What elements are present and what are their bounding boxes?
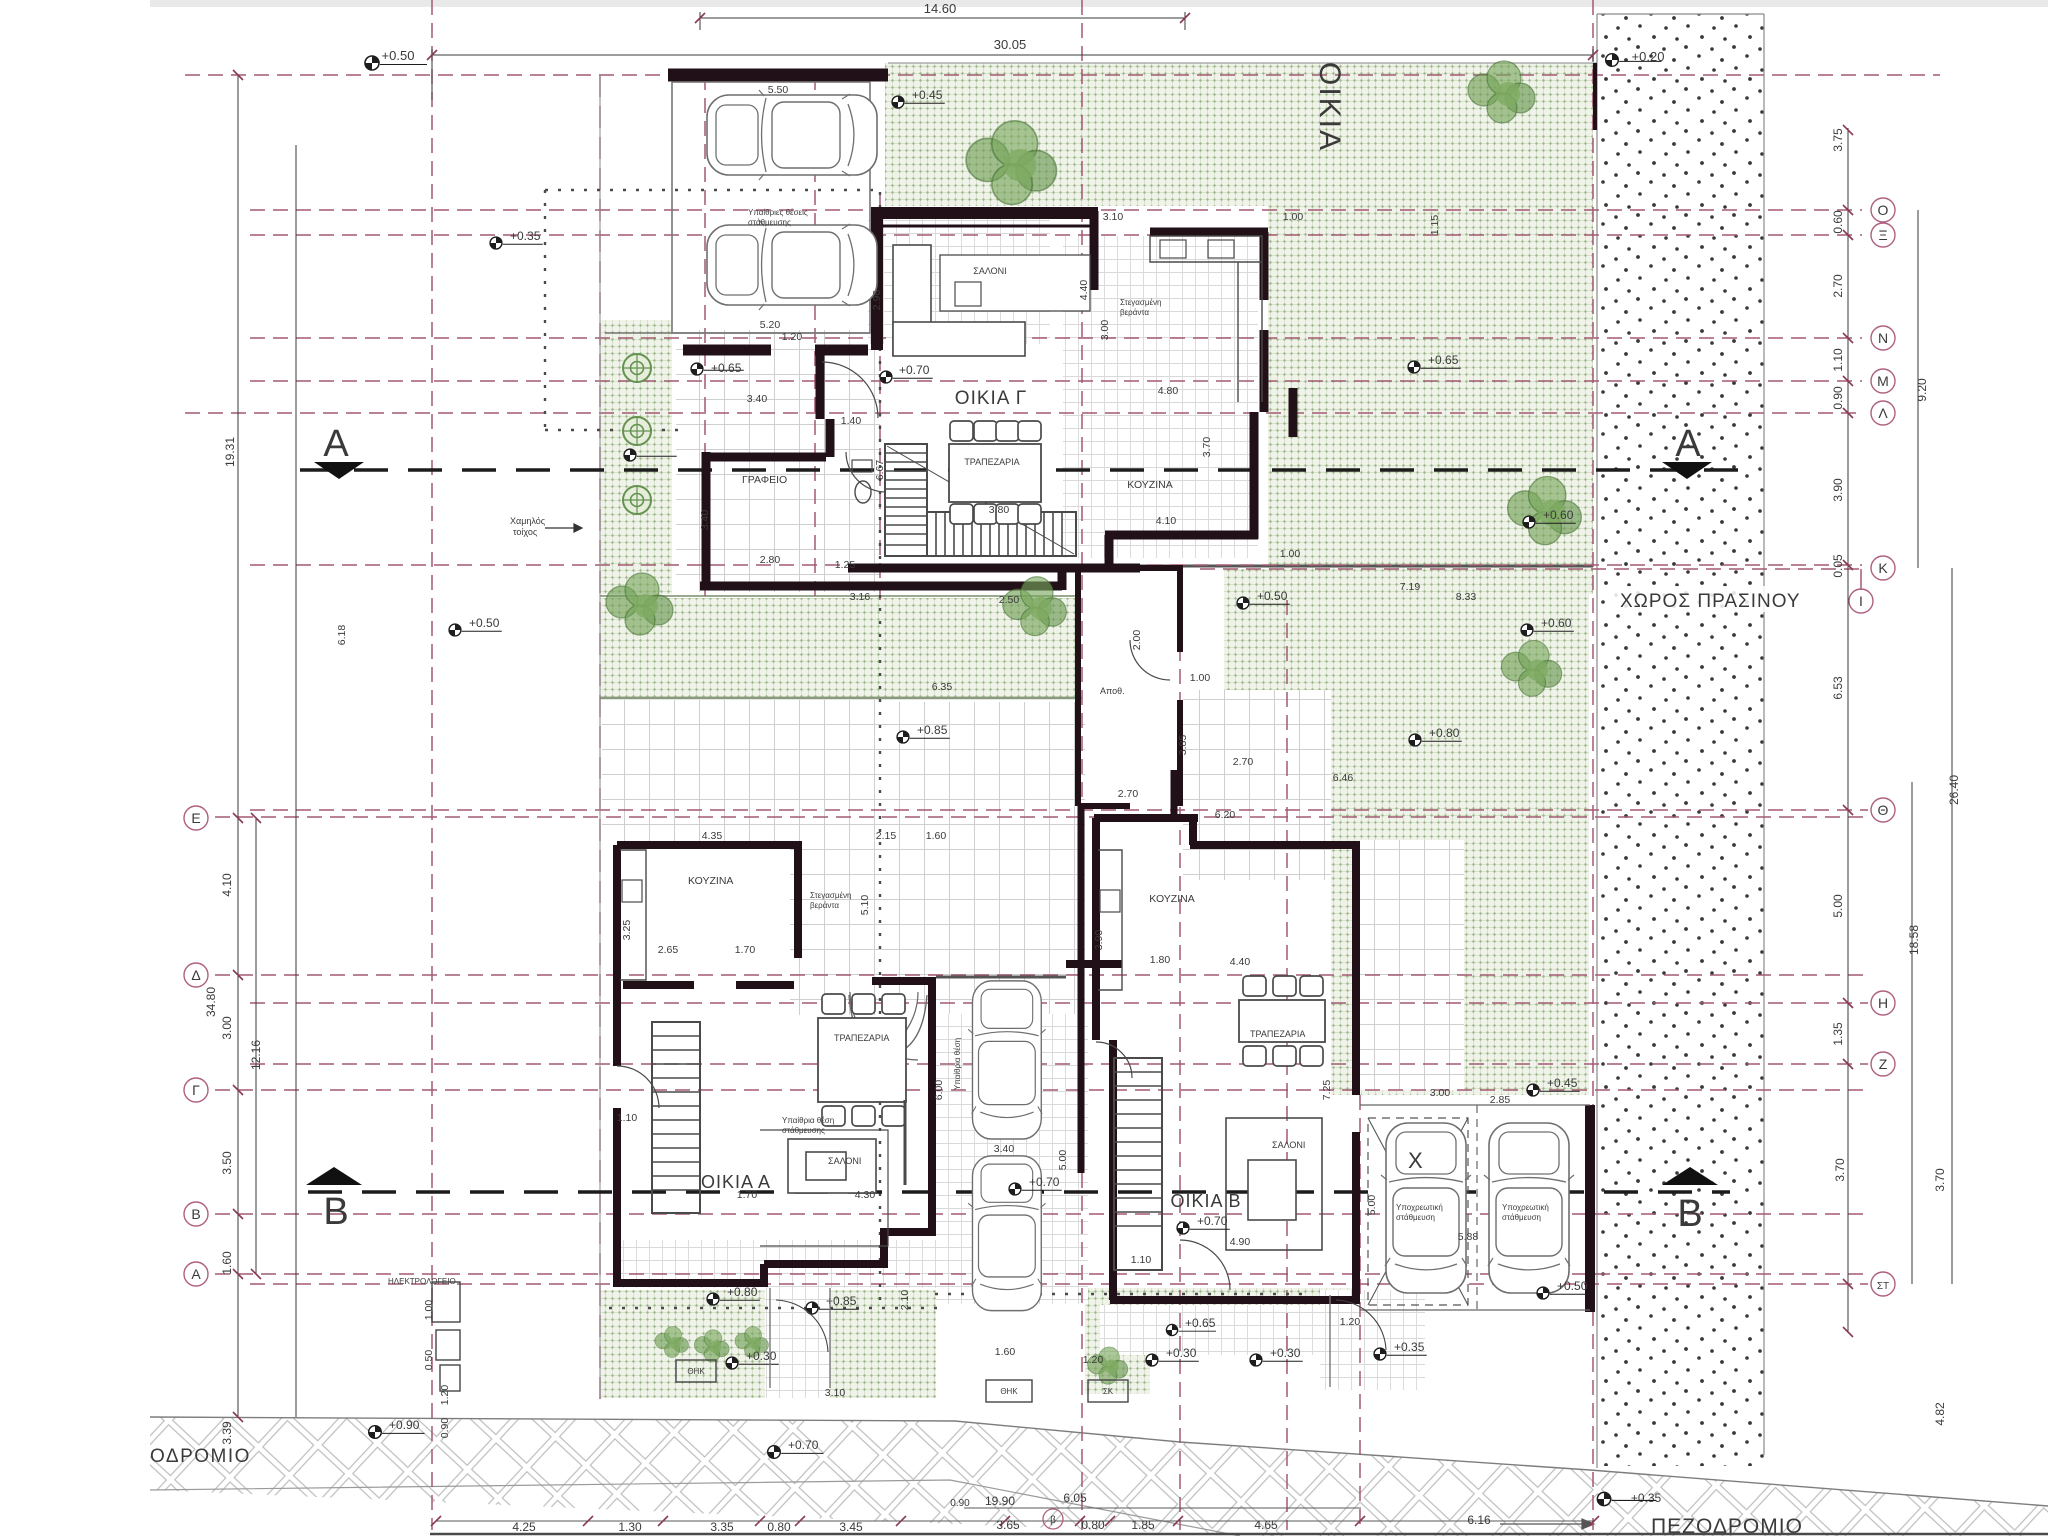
- svg-text:4.25: 4.25: [512, 1520, 536, 1534]
- svg-text:0.90: 0.90: [1831, 386, 1845, 410]
- svg-text:34.80: 34.80: [204, 987, 218, 1017]
- svg-text:2.96: 2.96: [871, 290, 883, 311]
- svg-text:1.70: 1.70: [735, 944, 756, 956]
- svg-text:Ξ: Ξ: [1878, 227, 1887, 243]
- svg-text:Υποχρεωτική: Υποχρεωτική: [1502, 1203, 1549, 1212]
- svg-text:Λ: Λ: [1878, 405, 1888, 421]
- svg-text:Γ: Γ: [192, 1082, 200, 1098]
- svg-text:+0.50: +0.50: [469, 616, 500, 630]
- svg-text:4.10: 4.10: [1156, 515, 1177, 527]
- svg-text:β: β: [1050, 1515, 1056, 1526]
- svg-text:1.15: 1.15: [1429, 215, 1441, 236]
- svg-text:+0.70: +0.70: [788, 1438, 819, 1452]
- svg-text:14.60: 14.60: [924, 1, 957, 16]
- svg-text:βεράντα: βεράντα: [810, 901, 839, 910]
- svg-text:στάθμευση: στάθμευση: [1502, 1213, 1541, 1222]
- svg-text:0.80: 0.80: [1081, 1518, 1105, 1532]
- svg-text:3.90: 3.90: [1831, 478, 1845, 502]
- svg-text:ΤΡΑΠΕΖΑΡΙΑ: ΤΡΑΠΕΖΑΡΙΑ: [964, 457, 1019, 467]
- svg-text:3.00: 3.00: [1099, 320, 1111, 341]
- svg-text:Κ: Κ: [1878, 560, 1888, 576]
- svg-text:ΤΡΑΠΕΖΑΡΙΑ: ΤΡΑΠΕΖΑΡΙΑ: [1250, 1029, 1305, 1039]
- svg-text:Αποθ.: Αποθ.: [1100, 686, 1125, 696]
- svg-text:1.10: 1.10: [617, 1112, 638, 1124]
- svg-text:3.45: 3.45: [839, 1520, 863, 1534]
- svg-text:2.70: 2.70: [1233, 756, 1254, 768]
- svg-text:1.35: 1.35: [1831, 1022, 1845, 1046]
- svg-text:5.20: 5.20: [760, 319, 781, 331]
- svg-text:1.00: 1.00: [423, 1300, 435, 1321]
- svg-text:1.60: 1.60: [926, 830, 947, 842]
- svg-text:Υποχρεωτική: Υποχρεωτική: [1396, 1203, 1443, 1212]
- svg-text:5.00: 5.00: [1057, 1150, 1069, 1171]
- svg-text:+0.90: +0.90: [389, 1418, 420, 1432]
- svg-text:ΚΟΥΖΙΝΑ: ΚΟΥΖΙΝΑ: [688, 875, 733, 887]
- svg-text:6.05: 6.05: [1063, 1491, 1087, 1505]
- svg-text:B: B: [323, 1191, 348, 1233]
- svg-text:Ο: Ο: [1878, 202, 1889, 218]
- svg-text:3.10: 3.10: [1103, 211, 1124, 223]
- svg-text:+0.35: +0.35: [1394, 1340, 1425, 1354]
- svg-text:9.20: 9.20: [1915, 378, 1929, 402]
- svg-text:στάθμευσης: στάθμευσης: [748, 218, 791, 227]
- svg-text:Χαμηλός: Χαμηλός: [510, 516, 546, 526]
- svg-text:4.30: 4.30: [855, 1189, 876, 1201]
- svg-text:+0.65: +0.65: [1185, 1316, 1216, 1330]
- svg-text:+0.30: +0.30: [746, 1349, 777, 1363]
- svg-text:τοίχος: τοίχος: [513, 527, 538, 537]
- svg-text:ΣΑΛΟΝΙ: ΣΑΛΟΝΙ: [973, 266, 1006, 276]
- svg-text:Ε: Ε: [191, 810, 200, 826]
- svg-text:4.35: 4.35: [702, 830, 723, 842]
- svg-text:+0.50: +0.50: [1557, 1279, 1588, 1293]
- svg-text:3.70: 3.70: [1201, 437, 1213, 458]
- svg-text:1.20: 1.20: [1083, 1354, 1104, 1366]
- svg-text:1.00: 1.00: [1283, 211, 1304, 223]
- svg-text:Ι: Ι: [1859, 593, 1863, 609]
- svg-text:ΤΡΑΠΕΖΑΡΙΑ: ΤΡΑΠΕΖΑΡΙΑ: [834, 1033, 889, 1043]
- svg-text:+0.70: +0.70: [1197, 1214, 1228, 1228]
- svg-text:2.80: 2.80: [760, 554, 781, 566]
- svg-text:B: B: [1677, 1193, 1702, 1235]
- svg-text:ΟΙΚΙΑ Β: ΟΙΚΙΑ Β: [1170, 1191, 1241, 1211]
- svg-text:ΣΑΛΟΝΙ: ΣΑΛΟΝΙ: [828, 1156, 861, 1166]
- svg-text:Υπαίθριες θέσεις: Υπαίθριες θέσεις: [748, 208, 808, 217]
- svg-text:ΓΡΑΦΕΙΟ: ΓΡΑΦΕΙΟ: [742, 474, 787, 486]
- svg-text:+0.70: +0.70: [899, 363, 930, 377]
- svg-text:1.60: 1.60: [995, 1346, 1016, 1358]
- svg-text:1.00: 1.00: [1280, 548, 1301, 560]
- svg-text:0.90: 0.90: [439, 1418, 451, 1439]
- svg-text:3.16: 3.16: [850, 591, 871, 603]
- svg-text:Θ: Θ: [1878, 802, 1889, 818]
- svg-text:1.60: 1.60: [220, 1251, 234, 1275]
- svg-text:Στεγασμένη: Στεγασμένη: [810, 891, 851, 900]
- svg-text:6.67: 6.67: [874, 460, 886, 481]
- svg-text:1.10: 1.10: [1131, 1254, 1152, 1266]
- svg-text:στάθμευσης: στάθμευσης: [782, 1126, 825, 1135]
- svg-text:2.15: 2.15: [876, 830, 897, 842]
- svg-text:7.19: 7.19: [1400, 581, 1421, 593]
- svg-text:3.65: 3.65: [996, 1518, 1020, 1532]
- svg-text:3.40: 3.40: [994, 1143, 1015, 1155]
- svg-text:Α: Α: [191, 1266, 201, 1282]
- svg-text:3.40: 3.40: [699, 510, 711, 531]
- svg-text:Υπαίθρια θέση: Υπαίθρια θέση: [782, 1116, 834, 1125]
- svg-text:0.50: 0.50: [423, 1350, 435, 1371]
- svg-text:+0.35: +0.35: [1631, 1491, 1662, 1505]
- svg-text:0.60: 0.60: [1831, 210, 1845, 234]
- svg-text:8.33: 8.33: [1456, 591, 1477, 603]
- svg-text:ΚΟΥΖΙΝΑ: ΚΟΥΖΙΝΑ: [1127, 479, 1172, 491]
- svg-text:3.35: 3.35: [710, 1520, 734, 1534]
- svg-text:5.88: 5.88: [1458, 1231, 1479, 1243]
- svg-text:3.00: 3.00: [1430, 1087, 1451, 1099]
- svg-text:1.20: 1.20: [439, 1385, 451, 1406]
- svg-text:1.40: 1.40: [841, 415, 862, 427]
- svg-text:3.70: 3.70: [1933, 1168, 1947, 1192]
- svg-text:ΧΩΡΟΣ ΠΡΑΣΙΝΟΥ: ΧΩΡΟΣ ΠΡΑΣΙΝΟΥ: [1620, 591, 1801, 612]
- svg-text:4.90: 4.90: [1230, 1236, 1251, 1248]
- svg-text:2.00: 2.00: [1131, 630, 1143, 651]
- svg-text:3.10: 3.10: [825, 1387, 846, 1399]
- svg-text:+0.80: +0.80: [1429, 726, 1460, 740]
- svg-text:Δ: Δ: [191, 967, 200, 983]
- svg-text:1.25: 1.25: [835, 559, 856, 571]
- svg-text:2.65: 2.65: [658, 944, 679, 956]
- svg-text:4.10: 4.10: [220, 873, 234, 897]
- svg-text:1.20: 1.20: [782, 331, 803, 343]
- svg-text:6.53: 6.53: [1831, 676, 1845, 700]
- svg-text:6.18: 6.18: [336, 625, 348, 646]
- svg-text:5.00: 5.00: [1831, 894, 1845, 918]
- svg-text:2.10: 2.10: [899, 1290, 911, 1311]
- svg-text:3.90: 3.90: [1093, 930, 1105, 951]
- svg-text:30.05: 30.05: [994, 37, 1027, 52]
- svg-text:Στεγασμένη: Στεγασμένη: [1120, 298, 1161, 307]
- svg-text:19.31: 19.31: [223, 437, 237, 467]
- svg-text:3.00: 3.00: [220, 1016, 234, 1040]
- svg-text:1.00: 1.00: [1190, 672, 1211, 684]
- svg-text:ΟΔΡΟΜΙΟ: ΟΔΡΟΜΙΟ: [150, 1446, 251, 1467]
- svg-text:3.85: 3.85: [1177, 735, 1189, 756]
- svg-text:ΚΟΥΖΙΝΑ: ΚΟΥΖΙΝΑ: [1149, 893, 1194, 905]
- svg-text:A: A: [323, 423, 349, 465]
- svg-text:6.46: 6.46: [1333, 772, 1354, 784]
- svg-text:+0.30: +0.30: [1166, 1346, 1197, 1360]
- svg-text:12.16: 12.16: [249, 1040, 263, 1070]
- svg-text:6.00: 6.00: [933, 1080, 945, 1101]
- svg-text:1.85: 1.85: [1131, 1518, 1155, 1532]
- svg-text:+0.80: +0.80: [727, 1285, 758, 1299]
- svg-text:ΣΑΛΟΝΙ: ΣΑΛΟΝΙ: [1272, 1140, 1305, 1150]
- svg-text:+0.65: +0.65: [1428, 353, 1459, 367]
- svg-text:7.25: 7.25: [1321, 1080, 1333, 1101]
- svg-text:4.40: 4.40: [1078, 280, 1090, 301]
- svg-text:+0.65: +0.65: [711, 361, 742, 375]
- svg-text:A: A: [1675, 423, 1701, 465]
- svg-text:6.20: 6.20: [1215, 809, 1236, 821]
- svg-text:6.35: 6.35: [932, 681, 953, 693]
- svg-text:+0.60: +0.60: [1543, 508, 1574, 522]
- svg-text:3.40: 3.40: [747, 393, 768, 405]
- svg-text:2.50: 2.50: [999, 594, 1020, 606]
- svg-text:3.70: 3.70: [1833, 1158, 1847, 1182]
- svg-text:+0.60: +0.60: [1541, 616, 1572, 630]
- svg-text:5.00: 5.00: [1366, 1195, 1378, 1216]
- svg-text:26.40: 26.40: [1947, 775, 1961, 805]
- svg-text:1.10: 1.10: [1831, 348, 1845, 372]
- svg-text:3.39: 3.39: [220, 1421, 234, 1445]
- svg-text:3.75: 3.75: [1831, 128, 1845, 152]
- svg-text:Β: Β: [191, 1206, 200, 1222]
- svg-text:+0.85: +0.85: [917, 723, 948, 737]
- svg-text:1.70: 1.70: [737, 1189, 758, 1201]
- svg-text:5.10: 5.10: [859, 895, 871, 916]
- svg-text:0.05: 0.05: [1831, 554, 1845, 578]
- svg-text:Η: Η: [1878, 995, 1888, 1011]
- svg-text:0.90: 0.90: [950, 1498, 970, 1509]
- svg-text:ΣΚ: ΣΚ: [1103, 1387, 1114, 1396]
- svg-text:2.70: 2.70: [1118, 788, 1139, 800]
- svg-text:0.80: 0.80: [767, 1520, 791, 1534]
- svg-text:Υπαίθρια θέση: Υπαίθρια θέση: [953, 1038, 962, 1090]
- svg-text:ΟΙΚΙΑ: ΟΙΚΙΑ: [1313, 62, 1346, 152]
- svg-text:5.50: 5.50: [768, 84, 789, 96]
- svg-text:X: X: [1408, 1148, 1423, 1173]
- svg-text:19.90: 19.90: [985, 1494, 1015, 1508]
- svg-text:ΟΙΚΙΑ Γ: ΟΙΚΙΑ Γ: [955, 388, 1027, 409]
- svg-text:ΣΤ: ΣΤ: [1877, 1281, 1889, 1292]
- svg-text:2.85: 2.85: [1490, 1094, 1511, 1106]
- svg-text:+0.50: +0.50: [1257, 589, 1288, 603]
- svg-text:+0.50: +0.50: [382, 48, 415, 63]
- svg-text:1.30: 1.30: [618, 1520, 642, 1534]
- svg-text:4.82: 4.82: [1933, 1402, 1947, 1426]
- svg-text:Ν: Ν: [1878, 330, 1888, 346]
- svg-text:4.80: 4.80: [1158, 385, 1179, 397]
- svg-text:βεράντα: βεράντα: [1120, 308, 1149, 317]
- svg-text:ΘΗΚ: ΘΗΚ: [687, 1367, 705, 1376]
- svg-text:4.40: 4.40: [1230, 956, 1251, 968]
- svg-text:στάθμευση: στάθμευση: [1396, 1213, 1435, 1222]
- svg-text:4.65: 4.65: [1254, 1518, 1278, 1532]
- svg-text:+0.45: +0.45: [1547, 1076, 1578, 1090]
- svg-text:Μ: Μ: [1877, 373, 1889, 389]
- svg-text:3.50: 3.50: [220, 1151, 234, 1175]
- svg-text:6.16: 6.16: [1467, 1513, 1491, 1527]
- svg-text:3.80: 3.80: [989, 504, 1010, 516]
- svg-text:18.58: 18.58: [1907, 925, 1921, 955]
- svg-text:+0.45: +0.45: [912, 88, 943, 102]
- svg-text:2.70: 2.70: [1831, 274, 1845, 298]
- svg-text:Ζ: Ζ: [1879, 1056, 1888, 1072]
- svg-text:+0.70: +0.70: [1029, 1175, 1060, 1189]
- svg-text:+0.35: +0.35: [510, 229, 541, 243]
- svg-text:1.80: 1.80: [1150, 954, 1171, 966]
- svg-text:+0.30: +0.30: [1270, 1346, 1301, 1360]
- svg-text:ΘΗΚ: ΘΗΚ: [1000, 1387, 1018, 1396]
- svg-text:3.25: 3.25: [621, 920, 633, 941]
- svg-text:1.20: 1.20: [1340, 1316, 1361, 1328]
